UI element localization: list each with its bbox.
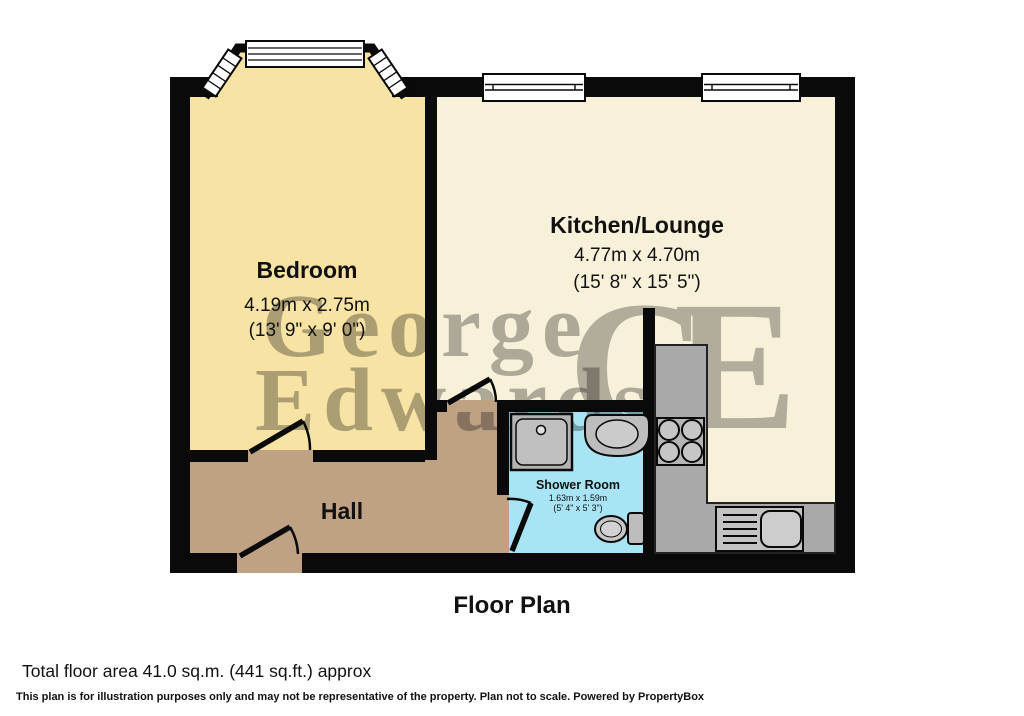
wall-shower-top — [497, 400, 655, 412]
wall-bedroom-hall-left — [182, 450, 248, 462]
shower-room-dims-m: 1.63m x 1.59m — [549, 493, 607, 503]
bay-window-front-pane — [246, 41, 364, 67]
wall-shower-left — [497, 412, 509, 495]
toilet-icon — [595, 513, 644, 544]
bedroom-dims-m: 4.19m x 2.75m — [244, 295, 370, 316]
kitchen-lounge-label: Kitchen/Lounge — [550, 212, 724, 238]
door-gap-shower — [497, 495, 509, 553]
hall-label: Hall — [321, 498, 363, 524]
window-kitchen-right — [702, 74, 800, 101]
floor-plan-page: GE George Edwards — [0, 0, 1024, 716]
total-floor-area: Total floor area 41.0 sq.m. (441 sq.ft.)… — [22, 661, 371, 681]
shower-room-label: Shower Room — [536, 478, 620, 492]
disclaimer: This plan is for illustration purposes o… — [16, 691, 705, 703]
bedroom-label: Bedroom — [257, 257, 358, 283]
kitchen-sink-icon — [716, 507, 803, 551]
kitchen-lounge-dims-m: 4.77m x 4.70m — [574, 245, 700, 266]
wall-bedroom-kitchen-divider — [425, 87, 437, 460]
door-gap-entrance — [237, 553, 302, 573]
wall-kitchen-hall-stub — [437, 400, 447, 412]
basin-icon — [585, 415, 649, 456]
hob-icon — [657, 418, 704, 465]
floor-plan-svg: GE George Edwards — [0, 0, 1024, 716]
kitchen-lounge-dims-ft: (15' 8" x 15' 5") — [573, 272, 700, 293]
shower-tray-icon — [511, 414, 572, 470]
shower-room-dims-ft: (5' 4" x 5' 3") — [553, 503, 602, 513]
wall-left — [170, 77, 190, 573]
wall-bedroom-hall-right — [313, 450, 425, 462]
window-kitchen-left — [483, 74, 585, 101]
bedroom-dims-ft: (13' 9" x 9' 0") — [249, 320, 366, 341]
door-gap-bedroom — [248, 450, 313, 462]
footer: Floor Plan Total floor area 41.0 sq.m. (… — [16, 592, 705, 703]
plan-title: Floor Plan — [453, 592, 570, 619]
wall-right — [835, 77, 855, 573]
